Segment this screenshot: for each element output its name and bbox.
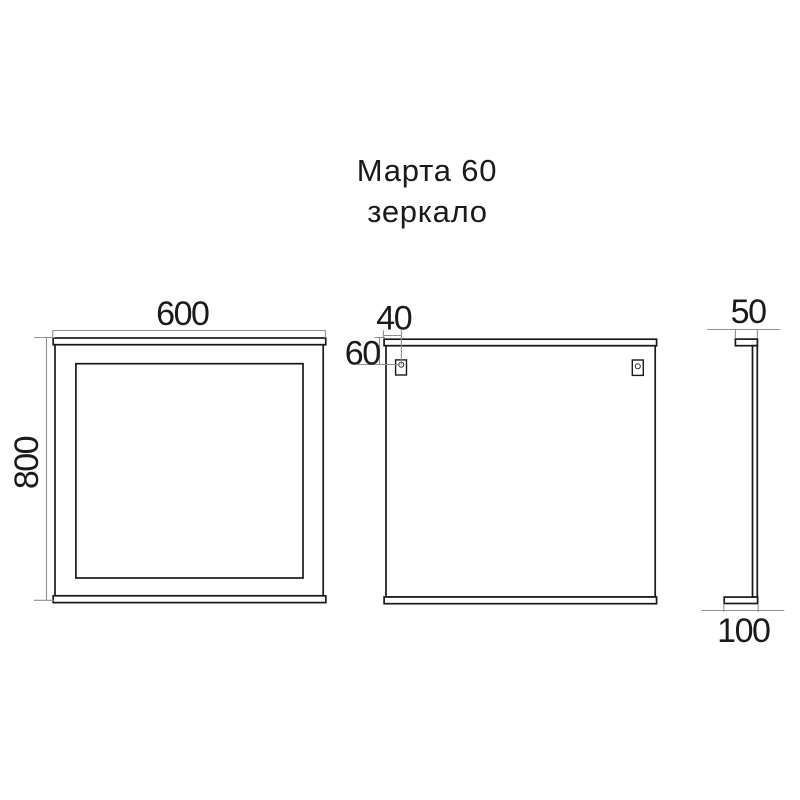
svg-text:100: 100 — [717, 612, 770, 650]
svg-text:40: 40 — [376, 299, 411, 337]
svg-text:60: 60 — [345, 335, 380, 373]
svg-text:Марта 60: Марта 60 — [357, 153, 498, 188]
svg-text:50: 50 — [731, 293, 766, 331]
svg-text:600: 600 — [156, 295, 209, 333]
svg-text:зеркало: зеркало — [367, 194, 487, 229]
svg-text:800: 800 — [8, 436, 46, 489]
